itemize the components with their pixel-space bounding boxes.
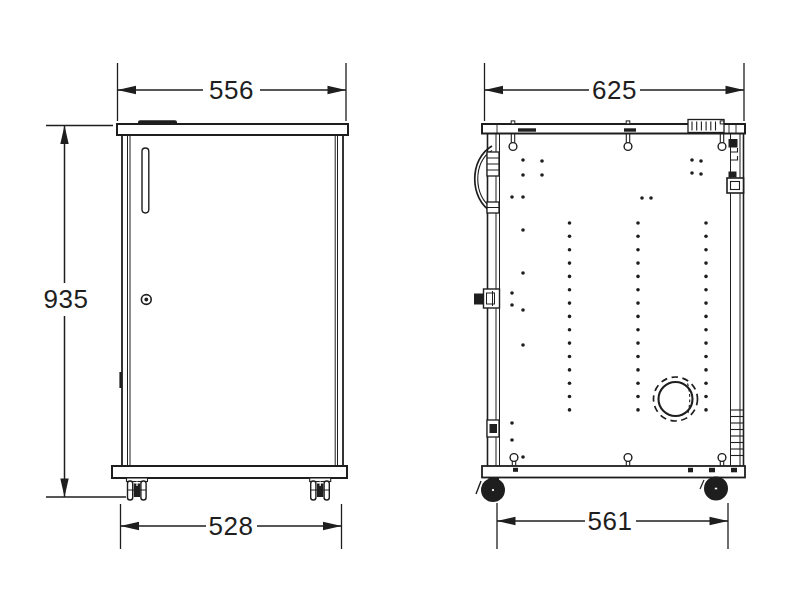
front-view: 556 935 528: [44, 63, 348, 549]
back-wall-hardware: [727, 139, 744, 193]
side-view: 625 561: [474, 63, 745, 549]
cable-grommet-icon: [654, 377, 698, 421]
dim-value-front-bottom-width: 528: [209, 511, 254, 541]
side-base: [482, 466, 745, 478]
dimension-side-bottom-depth: 561: [497, 503, 728, 549]
dimension-front-bottom-width: 528: [121, 504, 342, 549]
caster-front-right-icon: [310, 478, 331, 500]
dimension-front-height: 935: [44, 126, 126, 498]
top-handle-recess-icon: [138, 120, 177, 124]
door-slot-handle-icon: [142, 148, 149, 213]
cabinet-dimension-diagram: 556 935 528: [0, 0, 800, 600]
caster-side-left-icon: [476, 478, 505, 503]
door-latch-icon: [474, 289, 500, 308]
dim-value-side-top-depth: 625: [592, 75, 637, 105]
hatch-marks: [558, 122, 744, 476]
side-walls: [488, 134, 744, 467]
dimension-front-top-width: 556: [118, 63, 347, 121]
door-lock-icon: [141, 295, 151, 305]
caster-side-right-icon: [700, 477, 728, 501]
cabinet-base: [112, 466, 347, 478]
lower-latch-icon: [487, 420, 499, 437]
dimension-side-top-depth: 625: [485, 63, 745, 121]
dim-value-front-top-width: 556: [209, 75, 254, 105]
technical-drawing-canvas: 556 935 528: [0, 0, 800, 600]
cabinet-top-panel: [117, 120, 348, 135]
dim-value-side-bottom-depth: 561: [588, 506, 633, 536]
caster-front-left-icon: [127, 478, 148, 500]
cabinet-body: [121, 135, 343, 466]
dim-value-front-height: 935: [44, 284, 89, 314]
rivet-dots: [510, 158, 708, 459]
